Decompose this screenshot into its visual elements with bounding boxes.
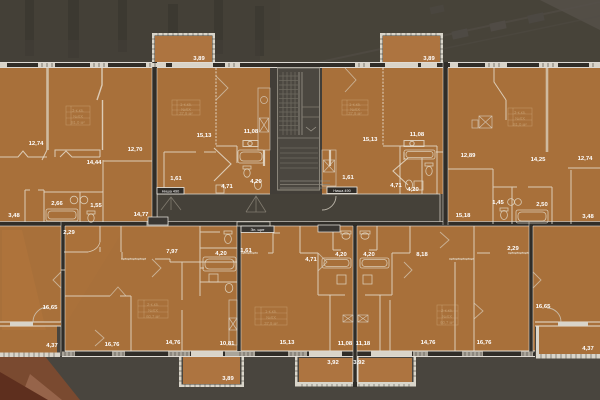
svg-text:14,77: 14,77	[134, 212, 149, 218]
svg-text:1,61: 1,61	[240, 248, 252, 254]
svg-text:11,18: 11,18	[356, 341, 371, 347]
svg-text:12,74: 12,74	[578, 156, 593, 162]
svg-text:3,89: 3,89	[222, 376, 234, 382]
svg-text:4,71: 4,71	[305, 257, 317, 263]
svg-text:14,76: 14,76	[421, 340, 436, 346]
svg-text:11,08: 11,08	[410, 132, 425, 138]
svg-text:4,20: 4,20	[250, 179, 262, 185]
svg-text:14,44: 14,44	[87, 160, 102, 166]
svg-text:Эл. щит: Эл. щит	[251, 228, 265, 232]
svg-text:16,65: 16,65	[536, 304, 551, 310]
svg-text:16,65: 16,65	[43, 305, 58, 311]
svg-text:14,76: 14,76	[166, 340, 181, 346]
svg-text:15,13: 15,13	[197, 133, 212, 139]
svg-text:4,20: 4,20	[215, 251, 227, 257]
svg-text:2,29: 2,29	[507, 246, 519, 252]
svg-text:3,92: 3,92	[353, 360, 365, 366]
svg-text:3,92: 3,92	[327, 360, 339, 366]
svg-text:Ниша 490: Ниша 490	[162, 190, 179, 194]
svg-text:12,89: 12,89	[461, 153, 476, 159]
svg-text:15,13: 15,13	[363, 137, 378, 143]
svg-text:16,76: 16,76	[105, 342, 120, 348]
svg-text:12,74: 12,74	[29, 141, 44, 147]
svg-text:4,37: 4,37	[46, 343, 58, 349]
svg-text:81,0 м²: 81,0 м²	[71, 120, 85, 125]
svg-text:2,50: 2,50	[536, 202, 548, 208]
svg-text:1,61: 1,61	[342, 175, 354, 181]
svg-text:15,18: 15,18	[456, 213, 471, 219]
svg-text:4,71: 4,71	[221, 184, 233, 190]
svg-text:Ниша 490: Ниша 490	[333, 189, 350, 193]
svg-text:8,18: 8,18	[416, 252, 428, 258]
svg-text:10,81: 10,81	[220, 341, 235, 347]
svg-text:60,7 м²: 60,7 м²	[440, 320, 454, 325]
svg-text:2,66: 2,66	[51, 201, 63, 207]
svg-text:4,37: 4,37	[582, 346, 594, 352]
svg-text:3,48: 3,48	[582, 214, 594, 220]
svg-text:4,20: 4,20	[363, 252, 375, 258]
svg-text:16,76: 16,76	[477, 340, 492, 346]
svg-text:11,08: 11,08	[338, 341, 353, 347]
svg-text:12,70: 12,70	[128, 147, 143, 153]
svg-text:1,55: 1,55	[90, 203, 102, 209]
svg-text:1,45: 1,45	[492, 200, 504, 206]
svg-text:1,61: 1,61	[170, 176, 182, 182]
svg-text:4,71: 4,71	[390, 183, 402, 189]
svg-text:3,48: 3,48	[8, 213, 20, 219]
svg-text:3,89: 3,89	[423, 56, 435, 62]
svg-text:4,20: 4,20	[407, 187, 419, 193]
svg-text:2,29: 2,29	[63, 230, 75, 236]
svg-text:4,20: 4,20	[335, 252, 347, 258]
svg-text:7,97: 7,97	[166, 249, 178, 255]
svg-text:2-к.кв.: 2-к.кв.	[441, 308, 453, 313]
svg-text:11,08: 11,08	[244, 129, 259, 135]
svg-text:3,89: 3,89	[193, 56, 205, 62]
svg-text:14,25: 14,25	[531, 157, 546, 163]
svg-text:15,13: 15,13	[280, 340, 295, 346]
